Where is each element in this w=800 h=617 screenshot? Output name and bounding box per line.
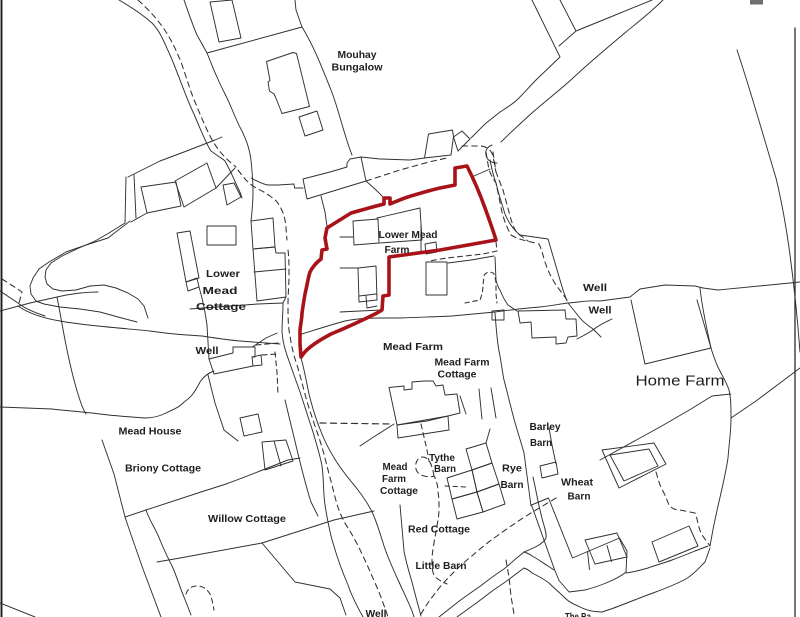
svg-text:Farm: Farm (382, 474, 406, 485)
svg-text:Mead Farm: Mead Farm (435, 358, 490, 369)
svg-text:Barn: Barn (501, 480, 524, 491)
svg-text:Mouhay: Mouhay (338, 50, 377, 61)
svg-text:Lower Mead: Lower Mead (379, 230, 438, 241)
svg-text:Tythe: Tythe (429, 453, 455, 464)
svg-text:Willow Cottage: Willow Cottage (208, 514, 286, 525)
svg-text:Cottage: Cottage (196, 302, 247, 313)
svg-text:Mead: Mead (203, 286, 238, 297)
svg-text:Rye: Rye (502, 464, 522, 475)
svg-text:Well: Well (366, 609, 387, 617)
svg-text:Cottage: Cottage (438, 370, 477, 381)
svg-text:Well: Well (583, 283, 607, 294)
svg-text:Wheat: Wheat (561, 478, 594, 489)
svg-text:Home Farm: Home Farm (636, 373, 725, 390)
svg-text:Well: Well (196, 346, 219, 357)
svg-text:Barn: Barn (568, 492, 591, 503)
svg-text:Mead: Mead (383, 462, 408, 473)
svg-text:Bungalow: Bungalow (332, 63, 383, 74)
svg-text:Cottage: Cottage (380, 486, 418, 497)
svg-text:Well: Well (589, 306, 612, 317)
svg-text:Lower: Lower (206, 269, 240, 280)
svg-text:Red Cottage: Red Cottage (408, 525, 470, 536)
svg-text:Little Barn: Little Barn (416, 561, 467, 572)
svg-text:Briony Cottage: Briony Cottage (125, 464, 201, 475)
svg-text:Mead House: Mead House (119, 427, 182, 438)
svg-text:Farm: Farm (385, 245, 410, 256)
svg-text:Barley: Barley (530, 422, 561, 433)
svg-text:The Ba: The Ba (565, 612, 591, 617)
svg-text:Barn: Barn (530, 438, 552, 449)
svg-text:Mead Farm: Mead Farm (383, 342, 443, 353)
svg-text:Barn: Barn (434, 464, 456, 475)
